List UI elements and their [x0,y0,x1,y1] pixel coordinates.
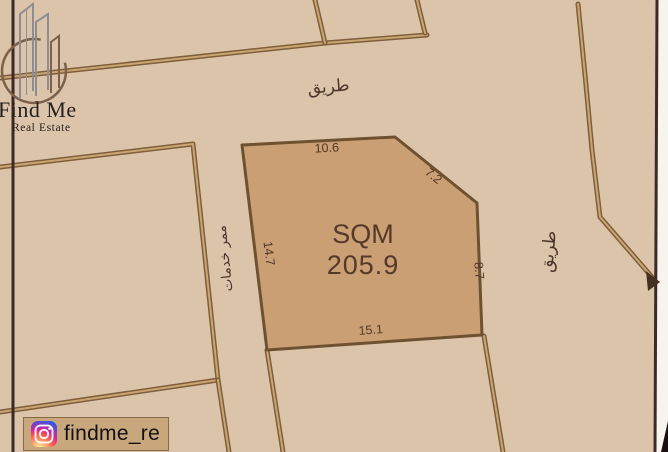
dimension-label: 8.7 [471,261,486,280]
instagram-handle: findme_re [64,423,160,446]
instagram-icon [31,421,57,447]
dimension-label: 15.1 [358,322,383,338]
parcel-area-label: SQM [332,219,394,249]
dimension-label: 10.6 [314,140,339,155]
instagram-camera-glyph [31,421,57,447]
road-label-top: طريق [307,75,350,99]
dimension-label: 14.7 [261,241,278,267]
instagram-badge: findme_re [23,417,169,451]
parcel-area-value: 205.9 [327,250,400,280]
road-label-right: طريق [537,230,561,273]
real-estate-map-image: SQM205.910.67.28.715.114.7طريقطريقممر خد… [0,0,668,452]
map-svg: SQM205.910.67.28.715.114.7طريقطريقممر خد… [0,0,668,452]
right-boundary-dark [655,0,657,452]
